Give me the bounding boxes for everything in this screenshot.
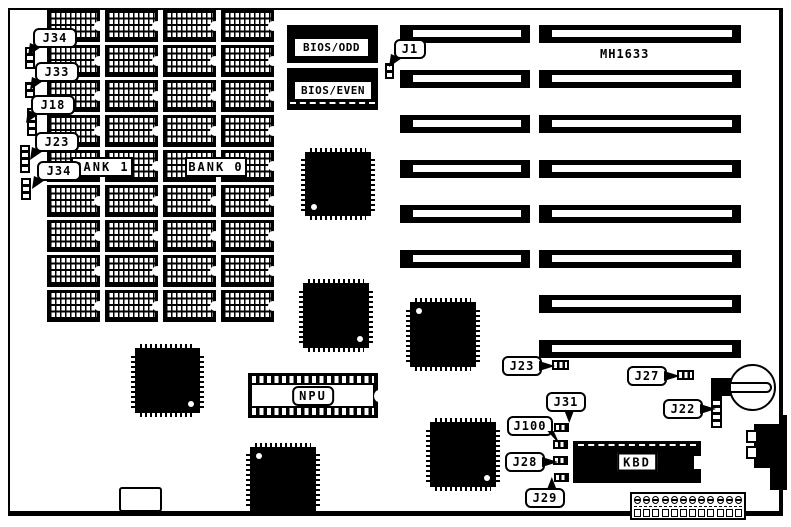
keyboard-din-connector-body [754, 424, 787, 468]
chip-notch [268, 91, 278, 101]
expansion-slot-long-segment [539, 160, 741, 178]
qfp-pin-row [435, 487, 491, 491]
memory-chip [105, 220, 158, 252]
power-pin-square [652, 509, 659, 517]
jumper-j23-center-header [552, 360, 569, 370]
kbd-notch [694, 456, 701, 469]
expansion-slot-short-segment [400, 250, 530, 268]
memory-chip [163, 80, 216, 112]
power-pin-square [634, 509, 641, 517]
memory-chip [163, 255, 216, 287]
chip-notch [94, 126, 104, 136]
kbd-dashed-line [578, 444, 696, 446]
memory-chip [163, 220, 216, 252]
chip-notch [94, 266, 104, 276]
power-pin-oval [726, 496, 733, 504]
qfp-chip [303, 283, 369, 348]
npu-pin-row-bottom [252, 408, 374, 415]
qfp-pin-row [310, 148, 366, 152]
memory-chip [163, 185, 216, 217]
chip-notch [210, 56, 220, 66]
memory-chip [47, 185, 100, 217]
power-pin-square [662, 509, 669, 517]
chip-notch [268, 196, 278, 206]
motherboard-diagram: BANK 1 BANK 0 J34 J33 J18 J23 J34 BIOS/O… [0, 0, 791, 527]
chip-notch [94, 196, 104, 206]
power-pin-oval [717, 496, 724, 504]
power-pin-square [707, 509, 714, 517]
callout-j34-mid: J34 [37, 161, 81, 181]
battery-clip-blade [726, 382, 772, 393]
empty-socket [119, 487, 162, 512]
qfp-pin-row [301, 157, 305, 211]
memory-chip [221, 80, 274, 112]
board-model-label: MH1633 [600, 47, 649, 61]
callout-j34-top-label: J34 [43, 31, 68, 45]
chip-notch [152, 196, 162, 206]
jumper-j34-mid-header [21, 178, 31, 200]
chip-notch [152, 266, 162, 276]
bios-even-label: BIOS/EVEN [293, 80, 373, 101]
expansion-slot-short-segment [400, 205, 530, 223]
qfp-pin-row [415, 298, 471, 302]
expansion-slot-long-segment [539, 115, 741, 133]
expansion-slot-long-segment [539, 340, 741, 358]
qfp-pin-row [496, 427, 500, 482]
npu-socket: NPU [248, 373, 378, 418]
power-pin-oval [689, 496, 696, 504]
memory-chip [105, 185, 158, 217]
chip-notch [152, 126, 162, 136]
callout-j18: J18 [31, 95, 75, 115]
jumper-j27-header [677, 370, 694, 380]
power-connector-square-row [634, 509, 742, 517]
power-pin-oval [735, 496, 742, 504]
memory-chip [105, 45, 158, 77]
expansion-slot-long-segment [539, 295, 741, 313]
chip-notch [152, 231, 162, 241]
chip-notch [94, 91, 104, 101]
power-connector-divider [634, 506, 742, 507]
chip-notch [152, 301, 162, 311]
expansion-slot-long-segment [539, 205, 741, 223]
qfp-pin-row [406, 307, 410, 362]
expansion-slot-short-segment [400, 115, 530, 133]
qfp-chip [410, 302, 476, 367]
qfp-pin-row [316, 452, 320, 506]
bios-even-dashed-line [290, 102, 375, 104]
chip-notch [94, 56, 104, 66]
power-pin-square [680, 509, 687, 517]
qfp-chip [250, 447, 316, 511]
expansion-slot-long-segment [539, 25, 741, 43]
qfp-chip [135, 348, 200, 413]
power-pin-square [643, 509, 650, 517]
callout-j1-label: J1 [402, 42, 418, 56]
callout-j31-label: J31 [554, 395, 579, 409]
power-pin-oval [643, 496, 650, 504]
qfp-pin-row [308, 279, 364, 283]
chip-notch [210, 21, 220, 31]
npu-label: NPU [292, 386, 334, 406]
battery-clip-base [711, 378, 731, 396]
callout-j31: J31 [546, 392, 586, 412]
power-pin-oval [634, 496, 641, 504]
pin1-dot [311, 204, 317, 210]
qfp-pin-row [255, 511, 311, 515]
qfp-chip [305, 152, 371, 216]
power-pin-square [735, 509, 742, 517]
memory-chip [163, 115, 216, 147]
jumper-j29-header [554, 473, 569, 482]
chip-notch [152, 21, 162, 31]
callout-j34-mid-label: J34 [47, 164, 72, 178]
qfp-pin-row [435, 418, 491, 422]
callout-j33: J33 [35, 62, 79, 82]
memory-chip [221, 45, 274, 77]
chip-notch [268, 21, 278, 31]
power-pin-oval [707, 496, 714, 504]
memory-chip [163, 45, 216, 77]
qfp-pin-row [310, 216, 366, 220]
callout-j23-left-label: J23 [45, 135, 70, 149]
chip-notch [152, 56, 162, 66]
chip-notch [152, 91, 162, 101]
power-pin-square [717, 509, 724, 517]
chip-notch [268, 161, 278, 171]
memory-chip [163, 290, 216, 322]
expansion-slot-short-segment [400, 160, 530, 178]
jumper-j23-left-header [20, 145, 30, 173]
callout-j33-label: J33 [45, 65, 70, 79]
callout-j27-label: J27 [635, 369, 660, 383]
expansion-slot-short-segment [400, 70, 530, 88]
power-pin-oval [662, 496, 669, 504]
chip-notch [210, 231, 220, 241]
bank0-label: BANK 0 [185, 157, 247, 177]
pin1-dot [484, 475, 490, 481]
pin1-dot [357, 336, 363, 342]
jumper-j22-header [711, 396, 722, 428]
chip-notch [94, 231, 104, 241]
callout-j1: J1 [394, 39, 426, 59]
qfp-pin-row [369, 288, 373, 343]
power-pin-oval [698, 496, 705, 504]
callout-j22: J22 [663, 399, 703, 419]
expansion-slot-long-segment [539, 70, 741, 88]
power-pin-square [671, 509, 678, 517]
callout-j100-label: J100 [514, 419, 547, 433]
power-pin-square [698, 509, 705, 517]
power-connector-oval-row [634, 496, 742, 504]
expansion-slot-long-segment [539, 250, 741, 268]
memory-chip [221, 115, 274, 147]
chip-notch [210, 301, 220, 311]
callout-j23-left: J23 [35, 132, 79, 152]
chip-notch [210, 91, 220, 101]
qfp-pin-row [476, 307, 480, 362]
memory-chip [105, 255, 158, 287]
memory-chip [47, 255, 100, 287]
callout-j18-label: J18 [41, 98, 66, 112]
pin1-dot [256, 453, 262, 459]
memory-chip [221, 290, 274, 322]
qfp-pin-row [246, 452, 250, 506]
memory-chip [163, 10, 216, 42]
memory-chip [221, 255, 274, 287]
kbd-label: KBD [617, 453, 657, 472]
power-pin-oval [680, 496, 687, 504]
power-pin-square [689, 509, 696, 517]
jumper-j31-header [554, 423, 569, 432]
keyboard-din-connector-base [770, 468, 787, 490]
qfp-pin-row [140, 413, 195, 417]
power-connector [630, 492, 746, 520]
chip-notch [268, 301, 278, 311]
qfp-pin-row [299, 288, 303, 343]
chip-notch [94, 21, 104, 31]
din-pin-block-top [746, 430, 758, 443]
qfp-pin-row [426, 427, 430, 482]
memory-chip [221, 185, 274, 217]
power-pin-oval [671, 496, 678, 504]
jumper-j100-header [553, 440, 568, 449]
power-pin-square [726, 509, 733, 517]
memory-chip [221, 10, 274, 42]
qfp-pin-row [200, 353, 204, 408]
chip-notch [268, 126, 278, 136]
callout-j23-center: J23 [502, 356, 542, 376]
chip-notch [268, 266, 278, 276]
callout-j28-label: J28 [513, 455, 538, 469]
callout-j22-label: J22 [671, 402, 696, 416]
chip-notch [210, 266, 220, 276]
callout-j29: J29 [525, 488, 565, 508]
qfp-pin-row [131, 353, 135, 408]
power-pin-oval [652, 496, 659, 504]
chip-notch [268, 56, 278, 66]
npu-pin-row-top [252, 376, 374, 383]
chip-notch [94, 301, 104, 311]
qfp-chip [430, 422, 496, 487]
callout-j28: J28 [505, 452, 545, 472]
memory-chip [105, 115, 158, 147]
memory-chip [105, 10, 158, 42]
chip-notch [268, 231, 278, 241]
din-pin-block-bottom [746, 446, 758, 459]
qfp-pin-row [308, 348, 364, 352]
callout-j27: J27 [627, 366, 667, 386]
npu-notch [374, 390, 384, 402]
kbd-chip: KBD [573, 441, 701, 483]
callout-j34-top: J34 [33, 28, 77, 48]
memory-chip [105, 80, 158, 112]
bios-odd-label: BIOS/ODD [293, 37, 370, 58]
callout-j29-label: J29 [533, 491, 558, 505]
qfp-pin-row [255, 443, 311, 447]
memory-chip [47, 290, 100, 322]
pin1-dot [416, 308, 422, 314]
chip-notch [210, 126, 220, 136]
pin1-dot [188, 401, 194, 407]
jumper-j28-header [553, 456, 568, 465]
memory-chip [105, 290, 158, 322]
memory-chip [47, 220, 100, 252]
callout-j23-center-label: J23 [510, 359, 535, 373]
qfp-pin-row [371, 157, 375, 211]
chip-notch [210, 196, 220, 206]
memory-chip [221, 220, 274, 252]
callout-j100: J100 [507, 416, 553, 436]
qfp-pin-row [140, 344, 195, 348]
qfp-pin-row [415, 367, 471, 371]
chip-notch [152, 161, 162, 171]
